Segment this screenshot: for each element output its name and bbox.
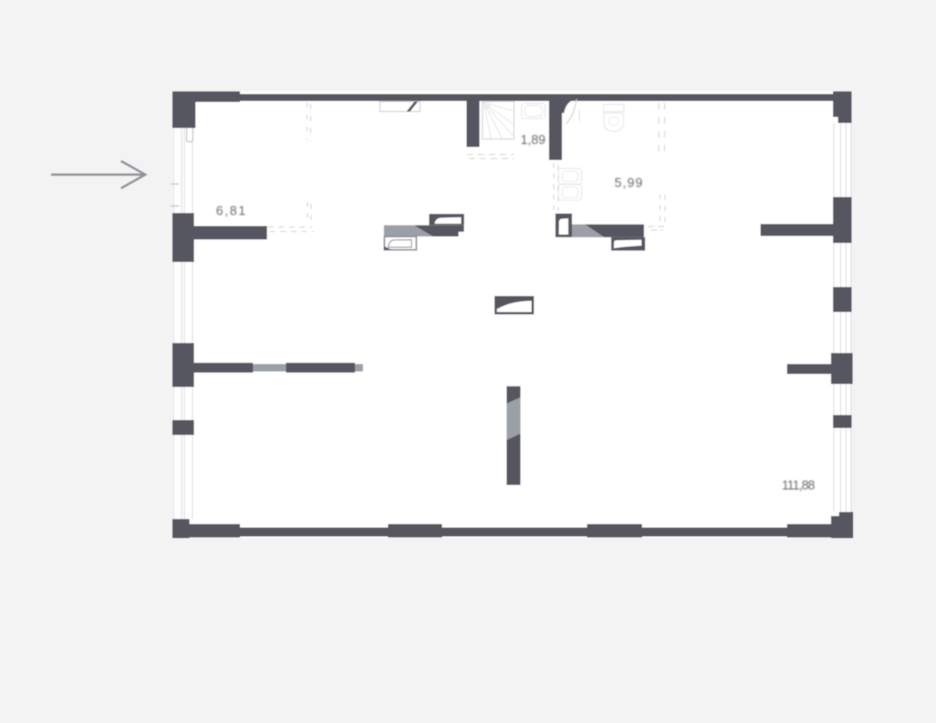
svg-text:1,89: 1,89 <box>521 132 546 147</box>
svg-text:111,88: 111,88 <box>782 478 815 493</box>
svg-text:6,81: 6,81 <box>216 203 247 218</box>
svg-text:5,99: 5,99 <box>615 175 644 190</box>
